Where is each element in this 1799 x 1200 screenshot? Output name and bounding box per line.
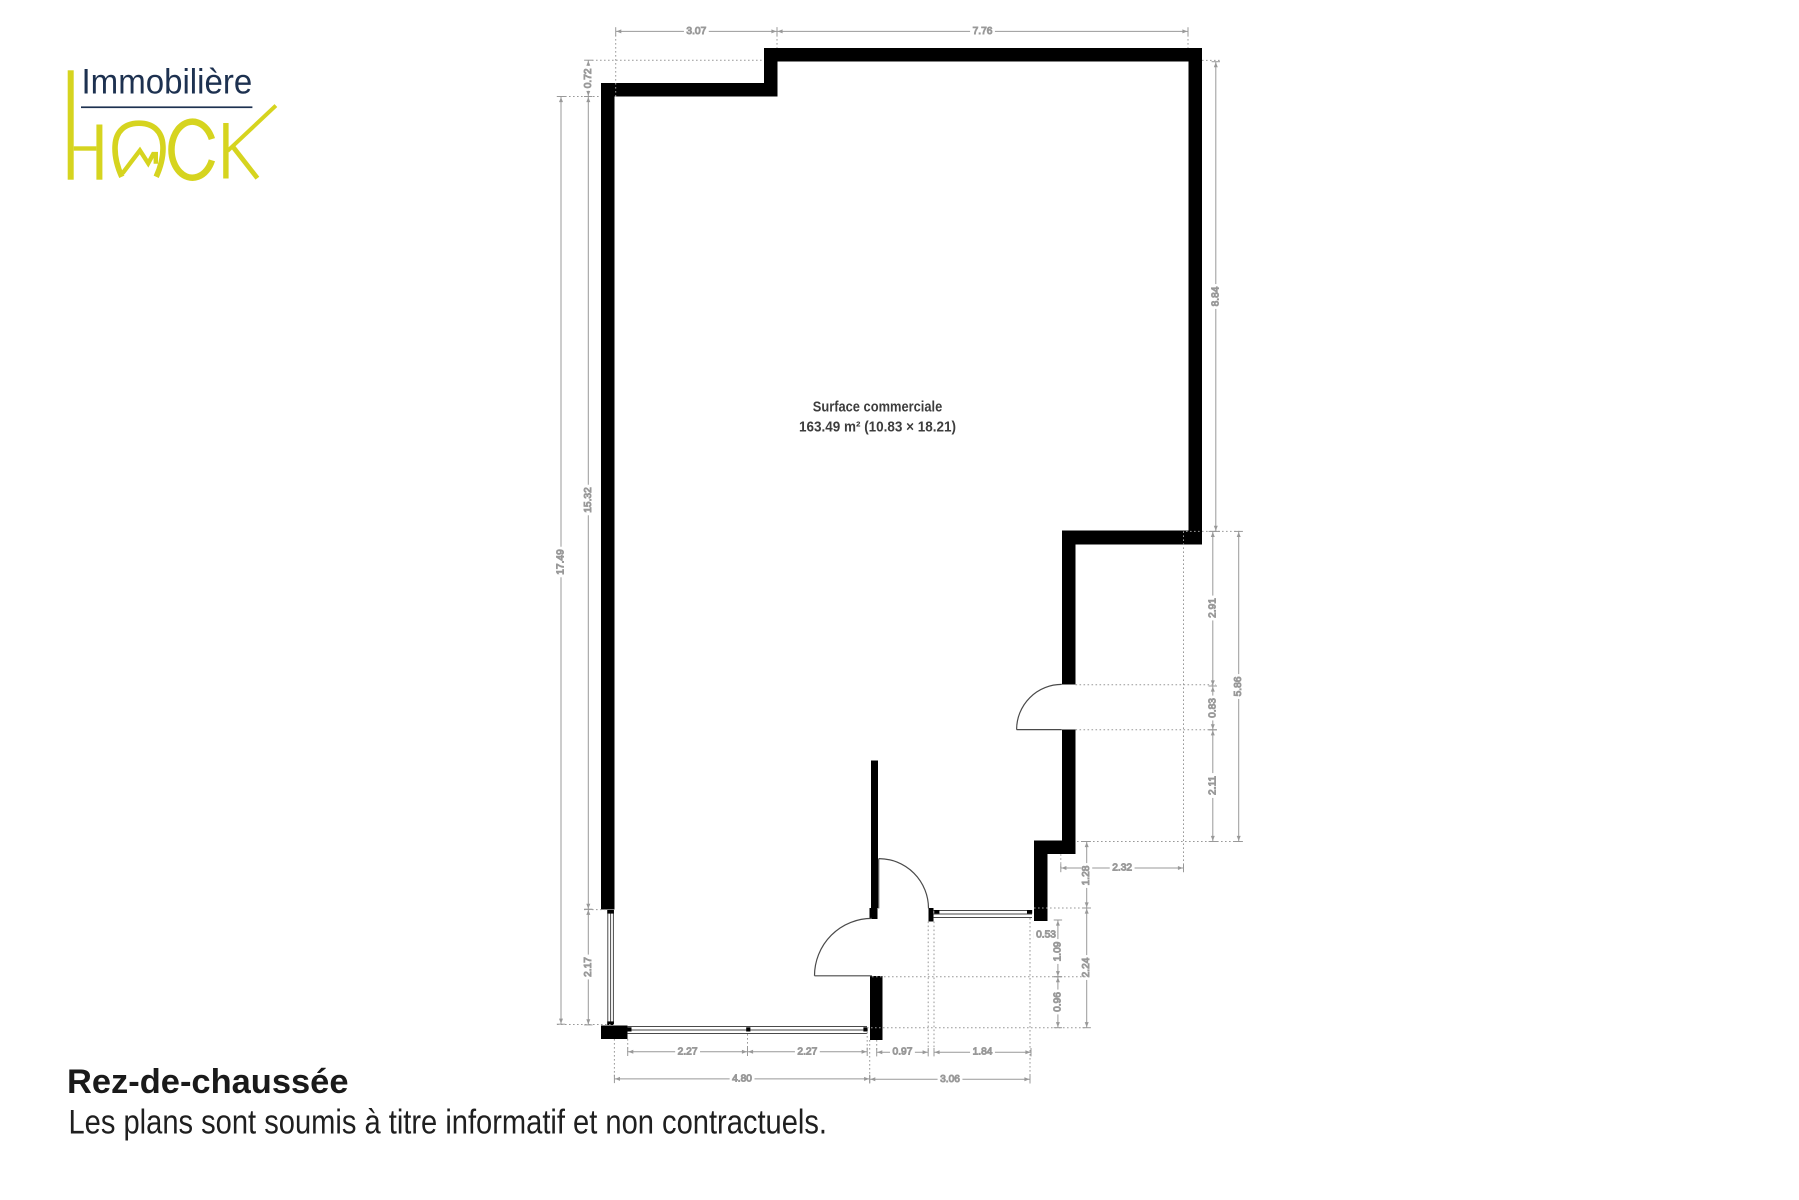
- svg-text:2.24: 2.24: [1081, 957, 1092, 977]
- svg-text:163.49 m² (10.83 × 18.21): 163.49 m² (10.83 × 18.21): [799, 420, 956, 436]
- svg-text:2.27: 2.27: [678, 1046, 698, 1057]
- svg-text:2.11: 2.11: [1207, 776, 1218, 795]
- svg-text:Surface commerciale: Surface commerciale: [813, 400, 943, 416]
- svg-text:1.84: 1.84: [973, 1047, 993, 1058]
- svg-text:3.07: 3.07: [686, 26, 706, 37]
- svg-text:5.86: 5.86: [1233, 676, 1244, 696]
- svg-text:0.53: 0.53: [1036, 930, 1056, 941]
- svg-text:2.32: 2.32: [1112, 863, 1132, 874]
- svg-text:15.32: 15.32: [583, 487, 594, 513]
- svg-text:2.27: 2.27: [797, 1046, 817, 1057]
- svg-text:7.76: 7.76: [973, 26, 993, 37]
- svg-text:2.91: 2.91: [1207, 598, 1218, 618]
- svg-text:Les plans sont soumis à titre: Les plans sont soumis à titre informatif…: [69, 1104, 828, 1142]
- svg-text:3.06: 3.06: [940, 1074, 960, 1085]
- svg-text:2.17: 2.17: [583, 957, 594, 977]
- svg-text:0.83: 0.83: [1207, 698, 1218, 718]
- svg-text:8.84: 8.84: [1210, 286, 1221, 306]
- svg-text:17.49: 17.49: [556, 549, 567, 575]
- svg-text:4.80: 4.80: [732, 1073, 752, 1084]
- svg-text:1.28: 1.28: [1081, 865, 1092, 885]
- svg-text:Rez-de-chaussée: Rez-de-chaussée: [67, 1063, 349, 1101]
- svg-text:0.97: 0.97: [893, 1047, 913, 1058]
- svg-text:0.96: 0.96: [1052, 992, 1063, 1012]
- svg-text:1.09: 1.09: [1052, 941, 1063, 961]
- svg-text:0.72: 0.72: [583, 68, 594, 88]
- svg-text:Immobilière: Immobilière: [82, 62, 253, 101]
